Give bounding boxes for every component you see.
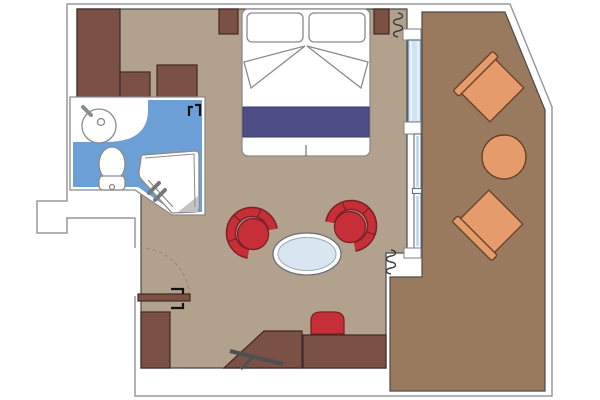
floor-plan-canvas xyxy=(0,0,600,400)
entry-cabinet xyxy=(141,312,170,368)
wardrobe-tall xyxy=(77,9,120,97)
nightstand-right xyxy=(374,9,389,34)
floor-plan xyxy=(0,0,600,400)
pillow-right xyxy=(309,13,365,42)
wardrobe-low-left xyxy=(120,72,150,97)
door-leaf xyxy=(138,294,190,301)
pillow-left xyxy=(247,13,303,42)
toilet-flush xyxy=(110,185,115,190)
wall-pier-middle xyxy=(404,122,421,134)
balcony-round-table xyxy=(482,135,526,179)
window-divider xyxy=(413,189,422,194)
basin-drain xyxy=(98,119,105,126)
wall-pier-bottom xyxy=(404,248,421,258)
double-bed xyxy=(242,9,370,156)
nightstand-left xyxy=(219,9,238,34)
bed-runner xyxy=(243,107,369,137)
washbasin xyxy=(82,109,116,143)
desk-chair xyxy=(311,312,344,334)
door-opening xyxy=(131,248,140,296)
wardrobe-low-right xyxy=(157,65,197,97)
glass-balcony-door xyxy=(408,40,421,122)
desk-straight xyxy=(303,335,386,368)
wall-pier-top xyxy=(403,29,421,40)
oval-table-glass xyxy=(278,238,336,271)
